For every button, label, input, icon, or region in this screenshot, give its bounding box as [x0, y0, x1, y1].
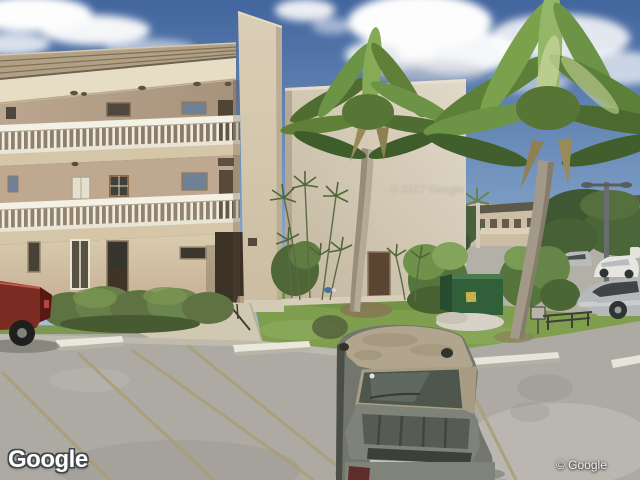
- scene-canvas: [0, 0, 640, 480]
- google-logo: Google: [8, 446, 88, 474]
- center-watermark: © 2017 Google: [390, 184, 464, 196]
- street-view-photo: © 2017 Google Google © Google: [0, 0, 640, 480]
- copyright-text: © Google: [556, 458, 607, 472]
